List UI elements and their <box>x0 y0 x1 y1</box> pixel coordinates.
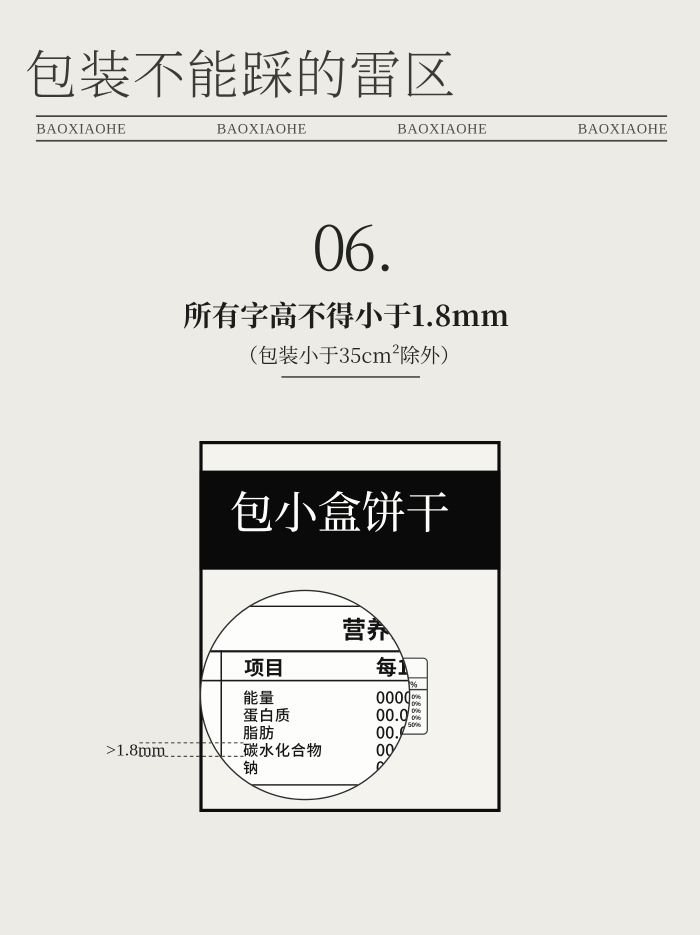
svg-text:>1.8mm: >1.8mm <box>106 740 166 759</box>
svg-text:BAOXIAOHE: BAOXIAOHE <box>397 122 487 138</box>
svg-text:0%: 0% <box>412 715 422 722</box>
svg-text:BAOXIAOHE: BAOXIAOHE <box>36 122 126 138</box>
svg-text:BAOXIAOHE: BAOXIAOHE <box>578 122 668 138</box>
svg-text:0%: 0% <box>412 694 422 701</box>
svg-text:0%: 0% <box>412 708 422 715</box>
svg-text:50%: 50% <box>408 722 421 729</box>
svg-text:0%: 0% <box>412 701 422 708</box>
svg-text:BAOXIAOHE: BAOXIAOHE <box>217 122 307 138</box>
